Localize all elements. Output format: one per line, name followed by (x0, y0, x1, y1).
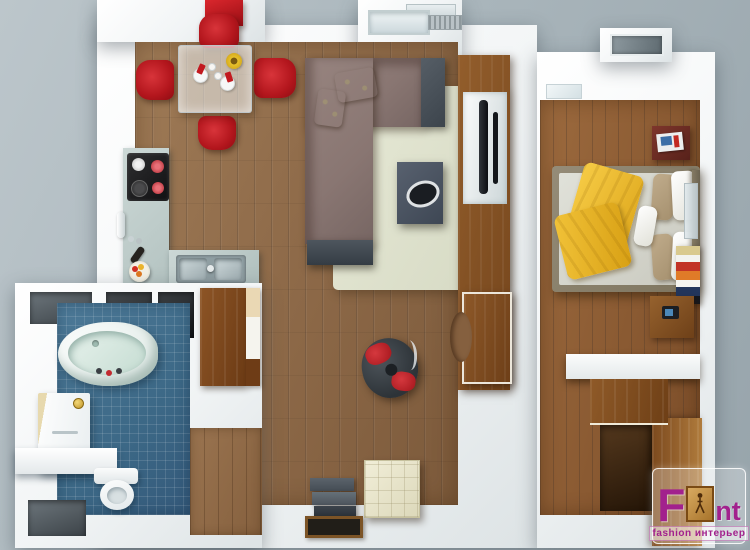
magazine-cover (660, 136, 672, 146)
under-desk-shadow (600, 423, 652, 511)
phone-screen (665, 309, 673, 316)
step-shelf (312, 492, 356, 505)
fruit (136, 271, 142, 277)
shower-handle (52, 431, 78, 434)
panel-segment (246, 288, 260, 317)
magazine (656, 132, 684, 153)
faucet (207, 265, 214, 272)
decor-dish (403, 176, 444, 212)
yellow-bowl (226, 53, 242, 69)
closet-side-panel (246, 288, 260, 386)
panel-segment (246, 317, 260, 358)
swivel-egg-chair (357, 334, 423, 403)
wall-vent (428, 15, 462, 30)
entry-hallway-floor (190, 428, 262, 535)
burner (131, 180, 148, 197)
living-window (368, 10, 430, 35)
step-shelf (310, 478, 354, 491)
logo-mannequin-icon (692, 492, 708, 516)
book (676, 280, 700, 287)
tub-control (106, 370, 112, 376)
glass-wall-shelf (684, 183, 698, 239)
toilet-bowl (100, 480, 134, 510)
console-curve-notch (450, 312, 472, 362)
desk-white-top (566, 354, 700, 379)
spice-jars (128, 236, 134, 242)
book (676, 246, 700, 255)
bathtub-drain (92, 340, 99, 347)
kitchen-double-sink (176, 255, 246, 283)
sofa-pillow (314, 88, 347, 128)
tub-control (96, 368, 102, 374)
bathtub-basin (68, 331, 146, 375)
burner (151, 160, 164, 173)
nightstand (650, 296, 694, 338)
flat-tv-edge (479, 100, 488, 194)
logo-letter-f: F (657, 488, 685, 524)
tv-bracket (493, 112, 498, 184)
watermark-logo: F nt fashion интерьер (652, 468, 746, 544)
coffee-table (397, 162, 443, 224)
phone-dock (662, 306, 679, 319)
oven-handle (117, 212, 125, 238)
logo-mannequin-box (686, 486, 714, 522)
book (676, 255, 700, 262)
nightstand (652, 126, 690, 160)
sink-basin (179, 258, 207, 280)
hallway-closet (200, 288, 246, 386)
dining-chair (199, 14, 239, 48)
wall-niche (28, 500, 86, 536)
book (676, 262, 700, 271)
fruit-bowl (129, 261, 150, 282)
floor-plan-scene: F nt fashion интерьер (0, 0, 750, 550)
bedroom-window (610, 34, 664, 56)
dining-chair (198, 116, 236, 150)
drinking-glass (214, 72, 222, 80)
toilet-seat (107, 487, 127, 504)
dining-chair (136, 60, 174, 100)
shower-emblem (73, 398, 84, 409)
burner (152, 182, 164, 194)
book (676, 287, 700, 296)
kitchen-cooktop (127, 153, 169, 201)
drinking-glass (208, 63, 216, 71)
fruit (138, 264, 144, 270)
desk-drawer-unit (590, 379, 668, 425)
ottoman-pouf (364, 460, 420, 518)
sink-basin (214, 258, 242, 280)
book (676, 271, 700, 280)
burner (132, 158, 145, 171)
dining-chair (254, 58, 296, 98)
sofa-end-table (307, 240, 373, 265)
bathtub (58, 322, 158, 386)
floor-tray (305, 516, 363, 538)
ceiling-light-panel (546, 84, 582, 99)
sofa-chaise-end (421, 58, 445, 127)
panel-segment (246, 359, 260, 386)
logo-wordmark: F nt (657, 478, 741, 524)
magazine-stripe (673, 135, 679, 147)
tub-control (116, 368, 122, 374)
logo-tagline: fashion интерьер (649, 526, 750, 541)
logo-letters-nt: nt (715, 501, 740, 523)
